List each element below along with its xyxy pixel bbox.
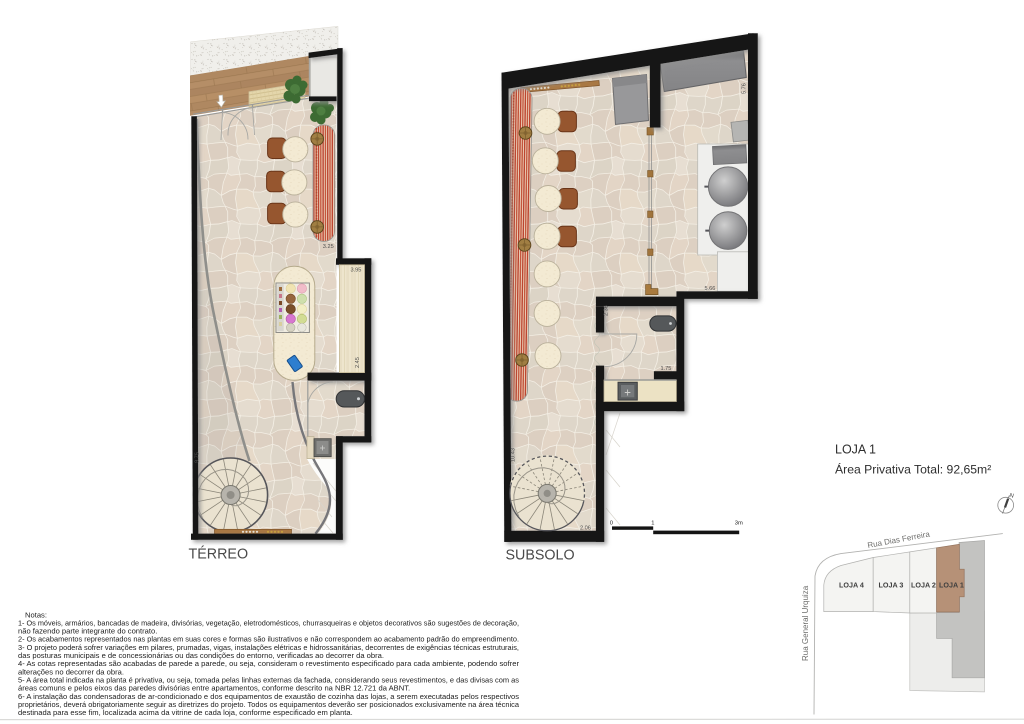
- svg-text:LOJA 4: LOJA 4: [839, 581, 864, 590]
- svg-text:9.75: 9.75: [195, 452, 201, 463]
- svg-text:LOJA 1: LOJA 1: [835, 443, 876, 457]
- svg-text:5.76: 5.76: [742, 83, 748, 94]
- svg-text:1.75: 1.75: [661, 366, 672, 372]
- svg-text:3.95: 3.95: [351, 268, 362, 274]
- svg-text:SUBSOLO: SUBSOLO: [506, 548, 575, 564]
- svg-text:2.36: 2.36: [604, 305, 610, 316]
- svg-text:Área Privativa Total: 92,65m²: Área Privativa Total: 92,65m²: [835, 462, 991, 477]
- svg-text:destinada para esse fim, local: destinada para esse fim, localizada acim…: [18, 708, 353, 717]
- svg-text:0: 0: [610, 521, 613, 527]
- svg-text:3m: 3m: [735, 521, 743, 527]
- svg-text:LOJA 1: LOJA 1: [939, 581, 964, 590]
- svg-text:3.25: 3.25: [323, 244, 334, 250]
- svg-text:Rua General Urquiza: Rua General Urquiza: [801, 585, 810, 661]
- svg-text:2.06: 2.06: [580, 526, 591, 532]
- svg-text:LOJA 3: LOJA 3: [879, 581, 904, 590]
- svg-text:5.66: 5.66: [705, 286, 716, 292]
- svg-text:1: 1: [651, 521, 654, 527]
- svg-text:N: N: [1009, 493, 1015, 500]
- svg-text:10.43: 10.43: [511, 448, 517, 462]
- svg-text:TÉRREO: TÉRREO: [189, 546, 249, 563]
- svg-text:2.45: 2.45: [355, 357, 361, 368]
- svg-text:LOJA 2: LOJA 2: [911, 581, 936, 590]
